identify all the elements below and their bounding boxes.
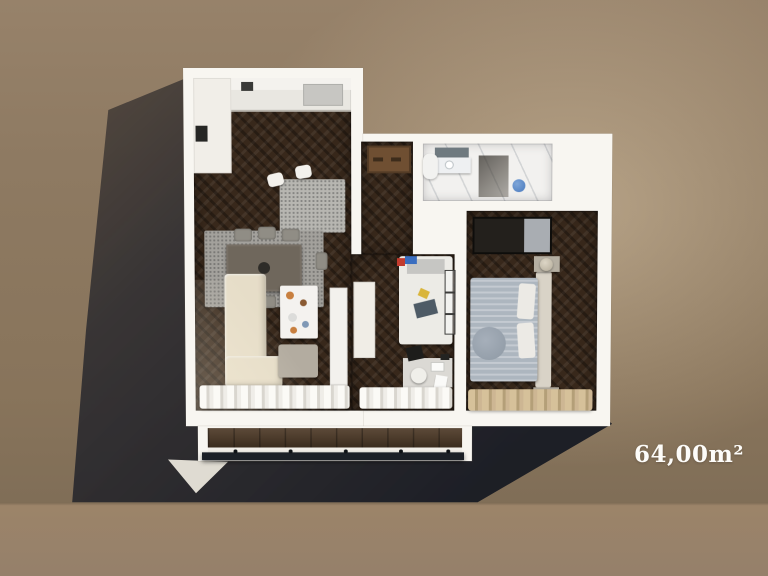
phone	[441, 354, 450, 360]
blanket-roll	[472, 327, 506, 360]
wall-shelves	[445, 270, 456, 335]
shower-column	[423, 154, 438, 180]
railing-post	[344, 449, 348, 453]
area-label: 64,00m²	[634, 441, 764, 468]
pillow	[517, 283, 536, 319]
floor-plan-wrap	[183, 62, 615, 474]
scene-background: 64,00m²	[0, 0, 768, 576]
desk-chair	[411, 368, 427, 384]
dining-chair	[316, 252, 328, 270]
balcony-railing	[202, 452, 464, 460]
kitchen-stove	[241, 82, 253, 91]
dining-chair	[258, 227, 276, 240]
toilet	[512, 179, 525, 192]
food-plate	[290, 327, 297, 334]
table-bowl	[258, 262, 270, 274]
sofa-chaise	[225, 356, 282, 387]
curtains-living	[199, 385, 349, 408]
laptop	[431, 362, 445, 372]
nightstand-lamp	[540, 258, 553, 271]
toy-box-blue	[405, 256, 417, 264]
door-handle	[373, 157, 383, 161]
kids-wardrobe	[353, 282, 375, 358]
floor-plan	[183, 62, 615, 467]
railing-post	[446, 449, 450, 453]
bathroom-mirror	[435, 148, 469, 158]
food-plate	[286, 292, 294, 300]
curtains-bedroom	[468, 389, 592, 410]
railing-post	[233, 449, 237, 453]
ottoman	[278, 344, 318, 377]
shelf-line	[445, 313, 456, 314]
oven-door	[195, 126, 207, 142]
balcony-deck	[208, 428, 462, 447]
railing-post	[399, 449, 403, 453]
kitchen-island	[280, 179, 346, 232]
tv-cabinet	[330, 288, 348, 386]
food-plate	[302, 321, 309, 328]
curtains-kids	[359, 387, 452, 408]
shelf-line	[445, 292, 456, 293]
railing-post	[289, 449, 293, 453]
kitchen-appliance	[303, 84, 343, 106]
dining-chair	[282, 229, 300, 242]
pillow	[517, 322, 536, 358]
wardrobe-door-light	[524, 219, 550, 252]
door-handle	[391, 157, 401, 161]
toy-box-red	[397, 258, 405, 266]
food-plate	[288, 313, 297, 322]
dining-chair	[234, 229, 252, 242]
shower-glass	[479, 155, 509, 197]
food-plate	[300, 299, 307, 306]
sink	[445, 160, 454, 169]
